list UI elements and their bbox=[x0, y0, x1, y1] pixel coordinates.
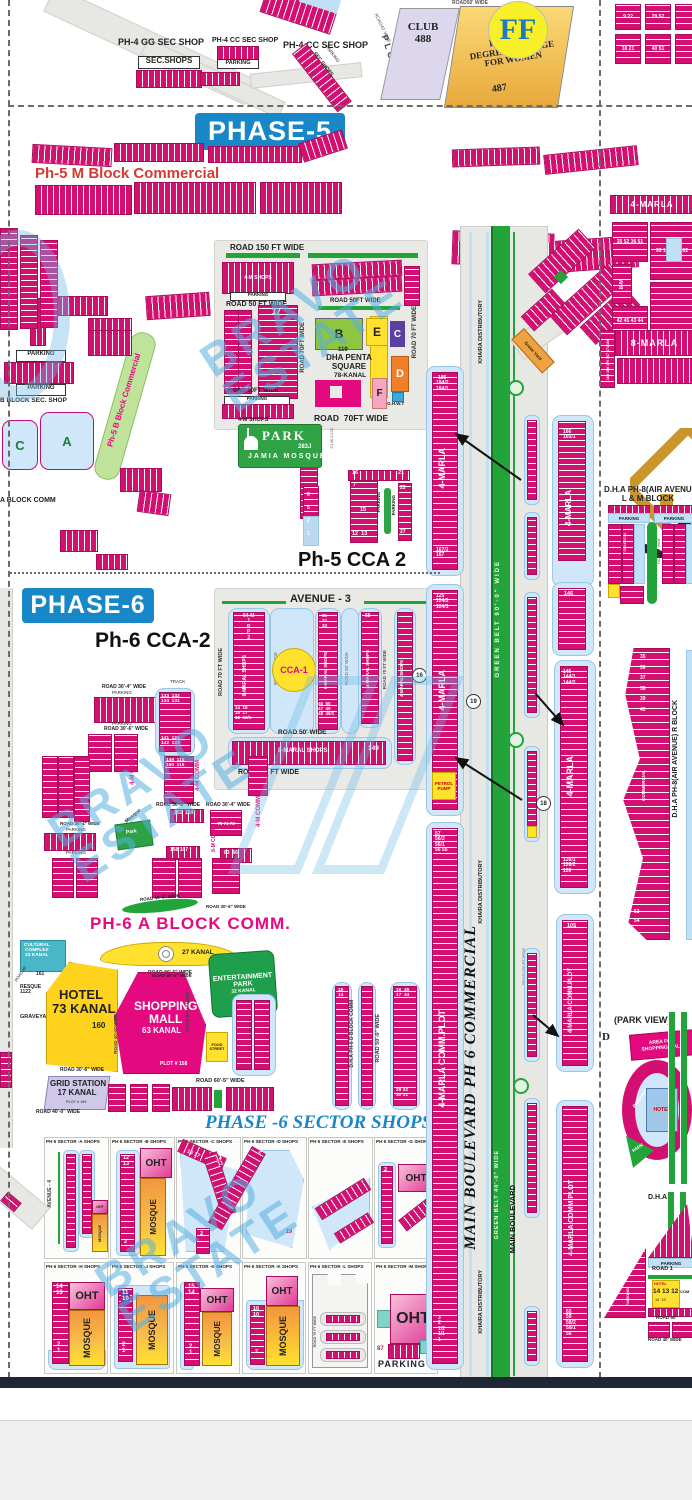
lm-block-title: D.H.A PH-8(AIR AVENUE) L & M BLOCK bbox=[604, 486, 692, 503]
west-strip-3-bot: 3 2 1/2 1/1 1 bbox=[438, 1316, 445, 1343]
east-strip-3-bot: 126/1 126/2 126 bbox=[563, 858, 576, 874]
tr-plot-d: 18 21 bbox=[615, 34, 641, 64]
penta-block-d: D bbox=[391, 356, 409, 392]
m-strip-row3-3 bbox=[145, 292, 211, 320]
ph6-a-block-title: PH-6 A BLOCK COMM. bbox=[90, 915, 291, 933]
a-block-letter: A bbox=[62, 434, 71, 449]
l6-blkA-nums: 133 132 134 131 bbox=[161, 694, 180, 704]
br-hotel-nums: 14 13 12 bbox=[653, 1288, 678, 1295]
panel-k2-bot: 2 bbox=[255, 1350, 258, 1356]
ph6-cca2-title: Ph-6 CCA-2 bbox=[95, 630, 211, 653]
jamia-mosque-label: JAMIA MOSQUE bbox=[248, 453, 327, 461]
lm-col-5 bbox=[674, 524, 686, 584]
panel-e-header: PH 6 SECTOR -E SHOPS bbox=[310, 1140, 364, 1145]
west-strip-1-label: 4-MARLA bbox=[438, 448, 448, 489]
park-label: PARK bbox=[262, 429, 306, 443]
right-grid-parking: PARKING bbox=[249, 1020, 253, 1038]
panel-h-mosque: MOSQUE bbox=[69, 1310, 105, 1366]
cca2-small-col bbox=[303, 486, 319, 518]
median-1-strip bbox=[527, 420, 537, 500]
lm-col-3 bbox=[634, 524, 645, 584]
m-strip-5 bbox=[452, 146, 541, 167]
bottom-strip-d bbox=[172, 1087, 212, 1111]
west-strip-1-bot: 167/1 167 bbox=[436, 548, 449, 559]
resque-label: RESQUE 1122 bbox=[20, 985, 41, 996]
green-belt-col-2 bbox=[680, 1012, 687, 1184]
median-4-strip bbox=[527, 751, 537, 827]
dblock-d2: 16 45 17 44 bbox=[396, 988, 409, 998]
tr-plot-c bbox=[675, 4, 692, 30]
panel-b-top-nums: 12 13 bbox=[123, 1156, 129, 1168]
cca2-parking-2: PARKING bbox=[392, 495, 397, 515]
ff-circle: FF bbox=[488, 1, 548, 59]
av3-col5-top: 65 bbox=[365, 614, 371, 619]
khaira-label-1: KHAIRA DISTRIBUTORY bbox=[479, 300, 485, 364]
l6-n158: 158 107 bbox=[170, 848, 188, 853]
r-block-comm-label: COMMERCIAL bbox=[642, 770, 647, 801]
br-road50-label: ROAD 50' bbox=[656, 1316, 677, 1321]
br-hotel-nums2: 16 15 bbox=[655, 1298, 666, 1302]
br-tri2-parking: PARKING bbox=[626, 1288, 630, 1306]
br-strip-2 bbox=[648, 1322, 670, 1338]
cca2-small-col-blue bbox=[303, 516, 319, 546]
r8-marla8-numcol: 169 168 170 167 171 166 bbox=[600, 330, 615, 388]
bottom-white-gap bbox=[0, 1388, 692, 1420]
gg-shops-strip-2 bbox=[200, 72, 240, 86]
lm-parking-right: PARKING bbox=[654, 513, 692, 523]
median-4-petrol bbox=[527, 826, 537, 838]
panel-a-oht: OHT bbox=[92, 1200, 108, 1214]
west-strip-3-top: 57 56/2 56/1 56 55 bbox=[435, 832, 448, 854]
cca2-n16: 16 bbox=[352, 471, 358, 477]
bottom-strip-b bbox=[130, 1084, 148, 1112]
grid-plot-label: PLOT # 159 bbox=[66, 1100, 86, 1104]
road-150-label: ROAD 150 FT WIDE bbox=[230, 244, 304, 253]
l6-8mcomm: 8-M COMM bbox=[212, 826, 217, 852]
cultural-number: 161 bbox=[36, 972, 44, 977]
road400-v-label: ROAD 40'-0" WIDE bbox=[114, 1014, 119, 1054]
l6-strip-2a bbox=[88, 734, 112, 772]
r8-marla8-header: 8-MARLA bbox=[615, 330, 692, 356]
petrol-pump-label: PETROL PUMP bbox=[435, 781, 453, 791]
lm-small-strip bbox=[620, 586, 644, 604]
av3-col1-bot-nums: 14 18 15 17 16 16/1 bbox=[235, 706, 251, 721]
dha-map-canvas[interactable]: PH-4 GG SEC SHOP SEC.SHOPS PH-4 CC SEC S… bbox=[0, 0, 692, 1500]
penta-block-f: F bbox=[372, 378, 387, 409]
phase6-title: PHASE-6 bbox=[22, 588, 154, 623]
right-grid-col2 bbox=[254, 1000, 270, 1070]
food-street-block: FOOD STREET bbox=[206, 1032, 228, 1062]
mosque-icon-minaret bbox=[247, 428, 249, 438]
r-block-bot-nums: 53 54 bbox=[634, 908, 640, 926]
br-road1-label: ROAD 1 bbox=[652, 1267, 673, 1273]
median-2-strip bbox=[527, 517, 537, 575]
petrol-pump-block: PETROL PUMP bbox=[432, 772, 456, 800]
m-strip-row2-2 bbox=[134, 182, 256, 214]
road-70ft-bottom-label: ROAD 70FT WIDE bbox=[314, 414, 388, 423]
right-dashed-boundary bbox=[599, 0, 601, 1378]
penta-block-c: C bbox=[390, 321, 405, 347]
road306-label-4: ROAD 30'-6" WIDE bbox=[60, 1068, 104, 1073]
ff-label: FF bbox=[500, 13, 537, 47]
hotel-block bbox=[46, 962, 118, 1072]
av3-col1-label: 8-MARAL SHOPS bbox=[243, 655, 248, 696]
panel-g-strip bbox=[381, 1166, 393, 1244]
bottom-strip-e bbox=[226, 1087, 274, 1111]
r8-grid-2: 8-M bbox=[612, 264, 632, 304]
park-number: 283J bbox=[298, 444, 311, 450]
median-7-strip bbox=[527, 1311, 537, 1361]
east-strip-4-hatch bbox=[562, 920, 588, 1066]
road605-label: ROAD 60'-5" WIDE bbox=[196, 1079, 245, 1085]
lm-green-median bbox=[647, 522, 657, 604]
top-dashed-boundary bbox=[8, 105, 692, 107]
bottom-strip-a bbox=[108, 1084, 126, 1112]
m-strip-2 bbox=[114, 143, 204, 162]
l6-row4-d bbox=[178, 858, 202, 898]
panel-h-top: 14 13 bbox=[56, 1284, 63, 1297]
lm-comm-label: COMMERCIAL bbox=[624, 532, 627, 554]
club-488-label: CLUB 488 bbox=[398, 22, 448, 46]
east-strip-5-bot: 60 59 58/2 58/1 56 bbox=[566, 1310, 576, 1337]
av3-col1-top-nums: 64-M 1 P P 2 bbox=[243, 614, 254, 641]
bottom-gray-panel bbox=[0, 1420, 692, 1500]
panel-m-hatch bbox=[388, 1344, 420, 1359]
road500-label: ROAD 50'-0" WIDE bbox=[376, 1014, 382, 1063]
tr-plot-a: 9 22 bbox=[615, 4, 641, 30]
tr-plot-f bbox=[675, 34, 692, 64]
cca2-n7: 7 bbox=[353, 483, 356, 489]
road806-label-2: ROAD 80'-6" WIDE bbox=[152, 974, 192, 979]
br-strip-3 bbox=[672, 1322, 692, 1338]
lm-parking-left: PARKING bbox=[608, 513, 650, 523]
cca2-n15: 15 bbox=[360, 508, 366, 514]
ohwt-label: O.H.W.T bbox=[387, 402, 404, 407]
panel-g-top: 2 bbox=[384, 1168, 387, 1174]
east-strip-2-top: 146 bbox=[564, 592, 573, 598]
lm-col-1 bbox=[608, 524, 622, 584]
east-strip-1-label: 4-MARLA bbox=[565, 490, 574, 526]
r8-grid-blue bbox=[666, 238, 682, 262]
panel-a-strip1 bbox=[66, 1154, 76, 1248]
l6-road306: ROAD 30'-6" WIDE bbox=[104, 727, 148, 732]
dblock-strip-1 bbox=[335, 986, 349, 1106]
panel-k-bot: 2 1 bbox=[189, 1344, 192, 1357]
panel-k2-oht: OHT bbox=[266, 1276, 298, 1306]
ph5-m-block-label: Ph-5 M Block Commercial bbox=[35, 166, 219, 182]
circle-18: 18 bbox=[536, 796, 551, 811]
road40-small-label: ROAD 40' bbox=[14, 966, 28, 983]
road-70-right-v-label: ROAD 70 FT WIDE bbox=[412, 306, 418, 358]
br-com-label: COM bbox=[680, 1290, 689, 1294]
m-strip-row2-1 bbox=[35, 185, 132, 215]
hotel-number: 160 bbox=[92, 1022, 105, 1031]
dblock-d1: 15 14 bbox=[338, 988, 343, 998]
hotel-label: HOTEL 73 KANAL bbox=[52, 988, 110, 1016]
median-5-strip bbox=[527, 953, 537, 1057]
r-block-blue-edge bbox=[686, 650, 692, 940]
a-block-blob: A bbox=[40, 412, 94, 470]
p5-mid-block-1 bbox=[88, 330, 132, 356]
track-label: TRACK bbox=[170, 680, 185, 685]
cc-parking-box: PARKING bbox=[217, 59, 259, 69]
ph4-cc-sec-shop-label-1: PH-4 CC SEC SHOP bbox=[212, 37, 278, 45]
east-strip-1-top: 166 165/1 bbox=[563, 430, 576, 441]
college-number: 487 bbox=[491, 83, 508, 96]
dblock-label: D.H.A PH-6 D BLOCK COMM bbox=[350, 1000, 355, 1068]
median-3-strip bbox=[527, 597, 537, 713]
tr-plot-b: 29 52 bbox=[645, 4, 671, 30]
panel-l-header: PH 6 SECTOR -L SHOPS bbox=[310, 1265, 363, 1270]
panel-l-hatch2 bbox=[326, 1333, 360, 1341]
circle-19: 19 bbox=[466, 694, 481, 709]
panel-l-hatch1 bbox=[326, 1315, 360, 1323]
d-label: D bbox=[602, 1032, 610, 1044]
west-strip-1-top: 185 184/2 184/1 bbox=[436, 376, 449, 392]
panel-b-header: PH 6 SECTOR -B SHOPS bbox=[112, 1140, 166, 1145]
panel-k2-mosque: MOSQUE bbox=[266, 1306, 300, 1366]
p5-mid-block-5 bbox=[96, 554, 128, 570]
mall-plot: PLOT # 158 bbox=[160, 1062, 187, 1067]
cca1-label: CCA-1 bbox=[280, 665, 308, 675]
panel-l-hatch3 bbox=[326, 1351, 360, 1359]
p5-mid-block-2 bbox=[120, 468, 162, 492]
cca2-title: Ph-5 CCA 2 bbox=[298, 550, 406, 572]
cca2-n27: 27 bbox=[400, 530, 406, 535]
roundabout-icon bbox=[158, 946, 174, 962]
panel-m-n87: 87 bbox=[377, 1346, 384, 1352]
panel-h-bot: 2 1 bbox=[57, 1342, 60, 1355]
sector-shops-title: PHASE -6 SECTOR SHOPS bbox=[205, 1113, 432, 1134]
panel-a-mosque: MOSQUE bbox=[92, 1214, 108, 1252]
mosque-icon bbox=[244, 436, 258, 450]
m-strip-6 bbox=[543, 145, 639, 175]
av3-road70-left: ROAD 70 FT WIDE bbox=[219, 648, 225, 696]
av3-col3-top: 31 32 33 bbox=[322, 614, 327, 629]
blvd-blue-stripe-2 bbox=[486, 232, 489, 1376]
roundabout-2 bbox=[508, 732, 524, 748]
greenbelt-label-1: GREEN BELT 90'-0" WIDE bbox=[495, 560, 501, 678]
grid-station-label: GRID STATION 17 KANAL bbox=[50, 1080, 104, 1097]
kanal27-label: 27 KANAL bbox=[182, 949, 214, 956]
lm-col-4 bbox=[662, 524, 674, 584]
gg-shops-strip bbox=[136, 70, 202, 88]
panel-d-header: PH 6 SECTOR -D SHOPS bbox=[244, 1140, 298, 1145]
panel-a-header: PH 6 SECTOR -A SHOPS bbox=[46, 1140, 100, 1145]
cultural-complex-label: CULTURAL COMPLEX 23 KANAL bbox=[24, 943, 50, 959]
east-strip-5-label: 4-MARLA COMM.PLOT bbox=[568, 1180, 576, 1256]
dblock-d3: 29 32 30 31 bbox=[396, 1088, 408, 1098]
l6-road306-3: ROAD 30'-6" WIDE bbox=[206, 905, 246, 910]
khaira-label-3: KHAIRA DISTRIBUTORY bbox=[479, 1270, 485, 1334]
panel-m-header: PH 6 SECTOR -M SHOPS bbox=[376, 1265, 431, 1270]
cca2-n23: 23 bbox=[400, 486, 406, 491]
tr-plot-e: 40 51 bbox=[645, 34, 671, 64]
cca2-n1213: 12 13 bbox=[352, 532, 367, 538]
lm-yellow-plot bbox=[608, 584, 620, 598]
cca2-parking-1: PARKING bbox=[377, 492, 382, 512]
panel-g-header: PH 6 SECTOR -G SHOPS bbox=[376, 1140, 430, 1145]
br-green-sliver bbox=[648, 1275, 692, 1279]
cca2-dashed-line bbox=[10, 572, 440, 574]
main-blvd-comm-label: MAIN BOULEVARD PH 6 COMMERCIAL bbox=[462, 925, 479, 1250]
mall-kanal: 63 KANAL bbox=[142, 1027, 181, 1036]
east-strip-3-top: 145 144/1 144/2 bbox=[563, 670, 576, 686]
khaira-label-2: KHAIRA DISTRIBUTORY bbox=[479, 860, 485, 924]
panel-b-oht: OHT bbox=[140, 1148, 172, 1178]
av3-road70-2: ROAD 70 FT WIDE bbox=[383, 650, 388, 689]
r-block-top-nums: 35 36 37 38 39 40 bbox=[640, 652, 646, 715]
west-strip-2-top: 125 124/2 124/1 bbox=[436, 594, 449, 610]
m-strip-row2-3 bbox=[260, 182, 342, 214]
panel-k2-top: 16 10 bbox=[253, 1307, 259, 1319]
r-block-title: D.H.A PH-8(AIR AVENUE) R BLOCK bbox=[672, 700, 680, 818]
r8-marla4-header: 4-MARLA bbox=[610, 195, 692, 214]
sec-shops-box: SEC.SHOPS bbox=[138, 56, 200, 69]
roundabout-3 bbox=[513, 1078, 529, 1094]
left-dashed-boundary bbox=[8, 0, 10, 1378]
br-triangle-2 bbox=[604, 1248, 646, 1318]
east-strip-3-label: 4-MARLA bbox=[566, 756, 576, 797]
green-belt-bar-1 bbox=[226, 253, 300, 258]
panel-j-bot: 2 1 bbox=[122, 1342, 125, 1355]
panel-a-strip2 bbox=[82, 1154, 92, 1234]
roundabout-1 bbox=[508, 380, 524, 396]
ph4-gg-sec-shop-label: PH-4 GG SEC SHOP bbox=[118, 38, 204, 48]
avenue3-line-left bbox=[222, 601, 286, 604]
dblock-strip-2 bbox=[361, 986, 373, 1106]
p5-mid-block-4 bbox=[60, 530, 98, 552]
r8-marla8-strip bbox=[617, 358, 692, 384]
panel-m-parking: PARKING bbox=[378, 1360, 426, 1370]
avenue4-label: AVENUE - 4 bbox=[48, 1180, 53, 1208]
road400-label-2: ROAD 40'-0" WIDE bbox=[36, 1110, 80, 1115]
penta-block-a-notch bbox=[330, 386, 342, 398]
bottom-green-sliver bbox=[214, 1090, 222, 1108]
r8-grid-1: 35 52 36 51 bbox=[612, 222, 648, 262]
main-blvd-label: MAIN BOULEVARD bbox=[509, 1185, 517, 1253]
lm-col-6 bbox=[686, 524, 692, 584]
dha-bottom-label: D.H.A bbox=[648, 1194, 667, 1202]
bottom-strip-c bbox=[152, 1084, 170, 1112]
c146-label: C146-C125 bbox=[330, 428, 334, 448]
road806-label-3: ROAD 80'-6" WIDE bbox=[186, 992, 191, 1032]
r8-grid-5 bbox=[650, 282, 692, 336]
c-block-letter: C bbox=[15, 438, 24, 453]
bottom-black-bar bbox=[0, 1377, 692, 1388]
park-view-title: (PARK VIEW) bbox=[614, 1016, 670, 1026]
panel-a-green-line bbox=[58, 1152, 60, 1244]
west-strip-3-label: 4-MARLA COMM.PLOT bbox=[438, 1010, 448, 1108]
m-strip-1 bbox=[32, 144, 113, 167]
avenue3-line-right bbox=[364, 601, 426, 604]
l6-row4-c bbox=[152, 858, 176, 898]
br-hotel-label: HOTEL bbox=[654, 1282, 667, 1286]
cca2-n21: 21 bbox=[398, 471, 404, 477]
p5-mid-block-3 bbox=[137, 490, 172, 516]
median-6-strip bbox=[527, 1103, 537, 1213]
cc-shops-block bbox=[217, 46, 259, 60]
penta-kanal: 78-KANAL bbox=[334, 372, 366, 379]
m-strip-3 bbox=[208, 146, 302, 163]
avenue3-label: AVENUE - 3 bbox=[290, 594, 351, 606]
br-road40-label: ROAD 40' WIDE bbox=[648, 1338, 682, 1343]
road75-label: ROAD 75 FT WIDE bbox=[314, 1316, 318, 1347]
left-edge-plot bbox=[0, 1052, 12, 1088]
cca2-green-5 bbox=[384, 488, 391, 534]
l6-parking-1: PARKING bbox=[112, 691, 132, 696]
east-strip-4-label: 4-MARLA COMM.PLOT bbox=[568, 968, 574, 1033]
panel-k-mosque: MOSQUE bbox=[202, 1312, 232, 1366]
east-strip-4-top: 105 bbox=[567, 924, 576, 930]
greenbelt-label-2: GREEN BELT 40'-0" WIDE bbox=[495, 1150, 501, 1239]
green-belt-col-1 bbox=[668, 1012, 675, 1184]
cca2-col-numbers: 6 5 2 1 bbox=[307, 489, 310, 541]
